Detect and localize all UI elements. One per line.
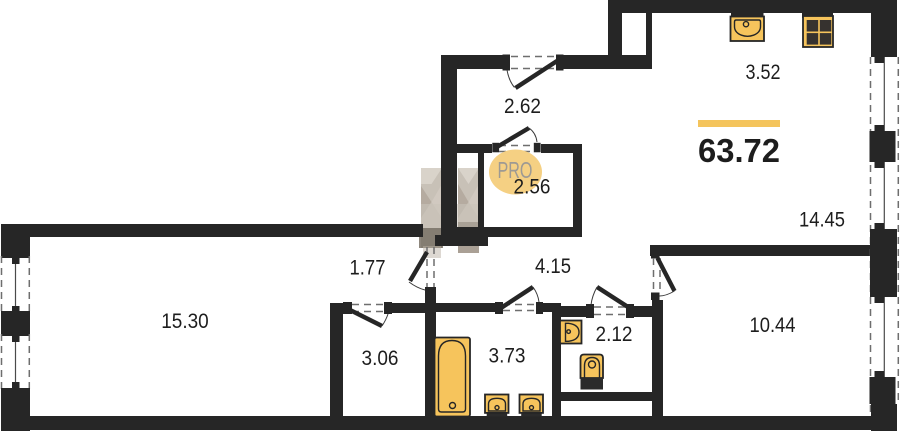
svg-text:10.44: 10.44	[750, 313, 796, 337]
svg-text:3.52: 3.52	[746, 60, 781, 84]
svg-text:3.06: 3.06	[362, 346, 399, 370]
svg-text:3.73: 3.73	[489, 344, 526, 368]
svg-text:63.72: 63.72	[698, 132, 780, 169]
svg-text:4.15: 4.15	[535, 254, 571, 278]
svg-text:1.77: 1.77	[350, 256, 386, 280]
svg-text:2.62: 2.62	[504, 94, 541, 118]
svg-text:15.30: 15.30	[161, 309, 209, 333]
svg-text:14.45: 14.45	[799, 208, 845, 232]
svg-text:2.56: 2.56	[514, 175, 551, 199]
svg-text:2.12: 2.12	[596, 322, 633, 346]
